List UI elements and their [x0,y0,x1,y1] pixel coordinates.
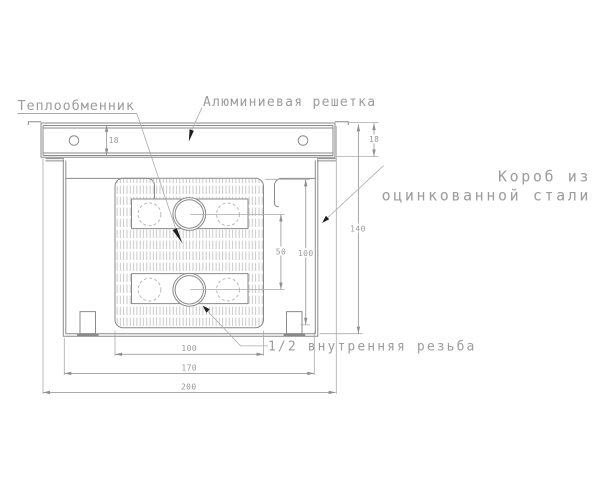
dim-text-core-height: 100 [298,249,314,258]
dim-text-grille-height-left: 18 [109,136,119,145]
foot-right [287,312,303,334]
dim-text-core-width: 100 [181,344,197,353]
box-shoulder-right [275,178,316,206]
label-box-line1: Короб из [498,168,591,186]
dim-text-grille-width: 200 [181,382,197,391]
dim-text-grille-height-right: 18 [369,135,379,144]
label-heat-exchanger: Теплообменник [18,98,135,114]
label-aluminum-grille: Алюминиевая решетка [203,95,376,110]
drawing-canvas: Теплообменник Алюминиевая решетка Короб … [0,0,600,480]
box-top-flanges [46,159,337,161]
dim-text-box-width: 170 [181,363,197,372]
aluminum-grille-profile [28,122,348,158]
dim-text-box-height: 140 [350,224,366,233]
technical-drawing: Теплообменник Алюминиевая решетка Короб … [0,0,600,480]
grille-hole-right [298,136,308,146]
leader-box [327,166,383,218]
label-box-line2: оцинкованной стали [382,187,591,205]
dim-text-tube-spacing: 50 [276,247,286,256]
foot-left [80,312,96,334]
label-thread: 1/2 внутренняя резьба [268,340,476,355]
grille-hole-left [69,136,79,146]
